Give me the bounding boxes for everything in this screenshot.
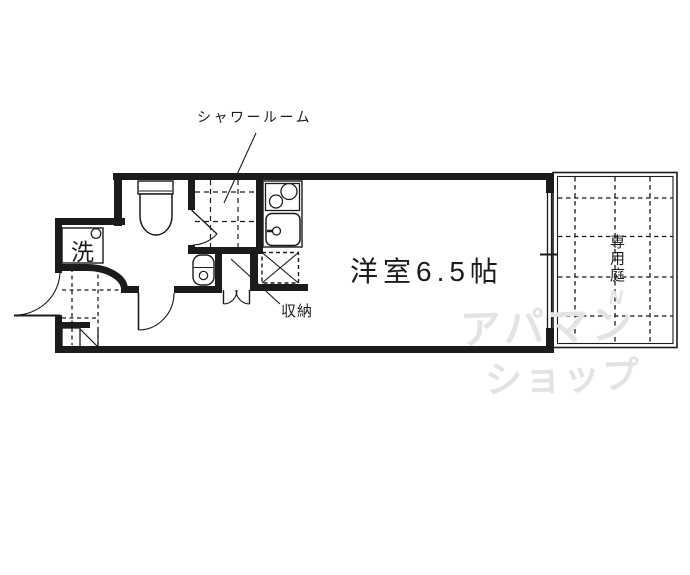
shoe-cabinet-box	[62, 328, 80, 347]
wall-top	[113, 173, 553, 180]
watermark-line2: ショップ	[484, 344, 642, 403]
shoe-cabinet-top-wall	[60, 322, 90, 328]
wall-shower-left-upper	[188, 177, 195, 210]
wall-hall-left	[121, 286, 139, 293]
wall-shower-right	[256, 173, 263, 254]
floorplan-drawing	[0, 0, 690, 575]
shoe-cabinet	[62, 328, 98, 347]
stove-burner-small	[270, 195, 283, 208]
room-door	[139, 293, 175, 330]
toilet-bowl	[140, 194, 172, 235]
main-room-label: 洋室6.5帖	[350, 250, 503, 290]
washbasin	[193, 255, 214, 285]
shoe-cabinet-diagonal	[80, 329, 98, 347]
washbasin-body	[193, 255, 214, 285]
kitchen-sink	[266, 214, 300, 246]
stove-burner-large	[281, 184, 297, 200]
wall-hall-right	[174, 286, 222, 293]
wall-below-fridge	[250, 284, 308, 291]
entry-door-arc	[15, 272, 60, 316]
shower-room-grid	[195, 180, 256, 247]
shower-room-label: シャワールーム	[197, 107, 312, 127]
wall-toilet-left	[114, 173, 122, 226]
wall-left-lower	[55, 315, 62, 353]
shower-door	[192, 210, 218, 245]
refrigerator-space	[262, 253, 299, 284]
toilet-tank	[138, 181, 173, 194]
room-door-arc	[139, 293, 175, 330]
storage-door-left-arc	[224, 290, 238, 304]
kitchen-unit	[263, 181, 302, 247]
washer-label: 洗	[71, 233, 94, 267]
shower-door-arc	[193, 234, 218, 245]
floorplan-canvas: アパマン ショップ N シャワールーム 洋室6.5帖 収納 洗 専用庭	[0, 0, 690, 575]
storage-door-right-arc	[236, 290, 250, 304]
entrance-boundary	[62, 267, 122, 345]
sink-faucet	[273, 227, 281, 235]
storage-label: 収納	[281, 300, 313, 321]
wall-storage-left	[215, 254, 222, 293]
storage-doors	[224, 290, 250, 304]
private-garden-label: 専用庭	[606, 234, 627, 284]
watermark-mark: N	[609, 288, 623, 310]
wall-storage-right	[250, 247, 258, 290]
entry-door	[14, 272, 60, 316]
wall-entry-curve	[87, 268, 125, 290]
washbasin-drain	[199, 271, 207, 279]
toilet	[138, 181, 173, 235]
